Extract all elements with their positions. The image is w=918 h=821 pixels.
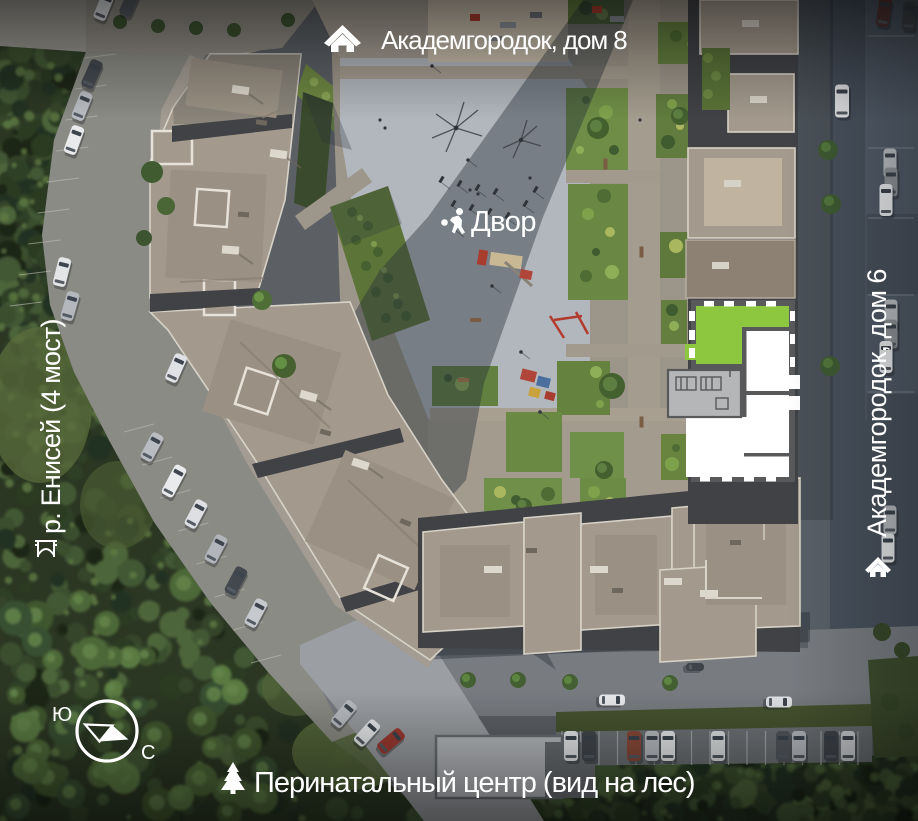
svg-text:Двор: Двор <box>471 206 536 238</box>
svg-text:Академгородок, дом 8: Академгородок, дом 8 <box>381 25 627 55</box>
svg-text:Перинатальный центр (вид на ле: Перинатальный центр (вид на лес) <box>254 767 695 799</box>
svg-text:Академгородок, дом 6: Академгородок, дом 6 <box>862 269 892 537</box>
svg-text:Ю: Ю <box>52 704 72 726</box>
svg-text:С: С <box>141 742 155 764</box>
svg-text:р. Енисей (4 мост): р. Енисей (4 мост) <box>36 319 66 534</box>
